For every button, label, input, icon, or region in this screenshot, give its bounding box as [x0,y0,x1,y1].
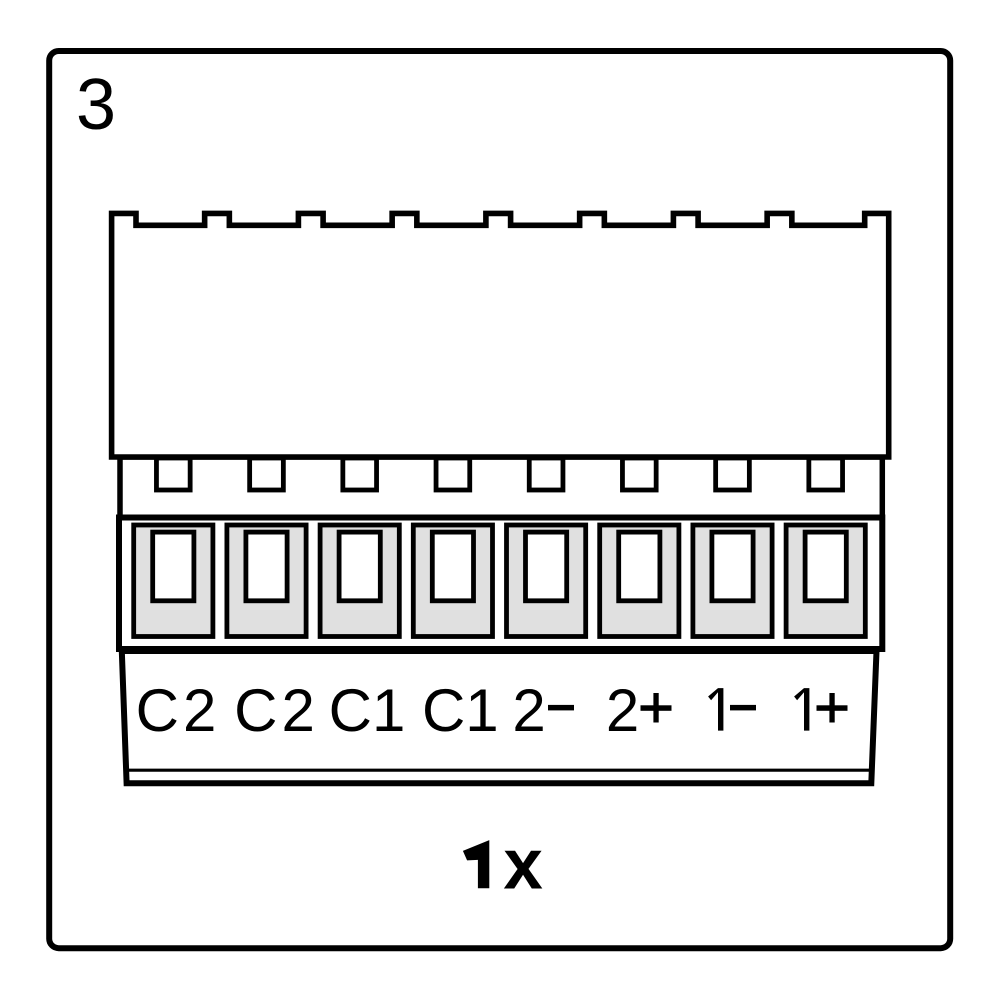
svg-text:2: 2 [606,677,639,744]
svg-text:C2: C2 [136,677,221,744]
svg-text:C1: C1 [422,677,499,744]
svg-text:x: x [503,825,543,904]
svg-text:C1: C1 [329,677,406,744]
svg-text:2: 2 [512,677,545,744]
svg-text:C2: C2 [234,677,319,744]
svg-text:3: 3 [76,65,116,145]
